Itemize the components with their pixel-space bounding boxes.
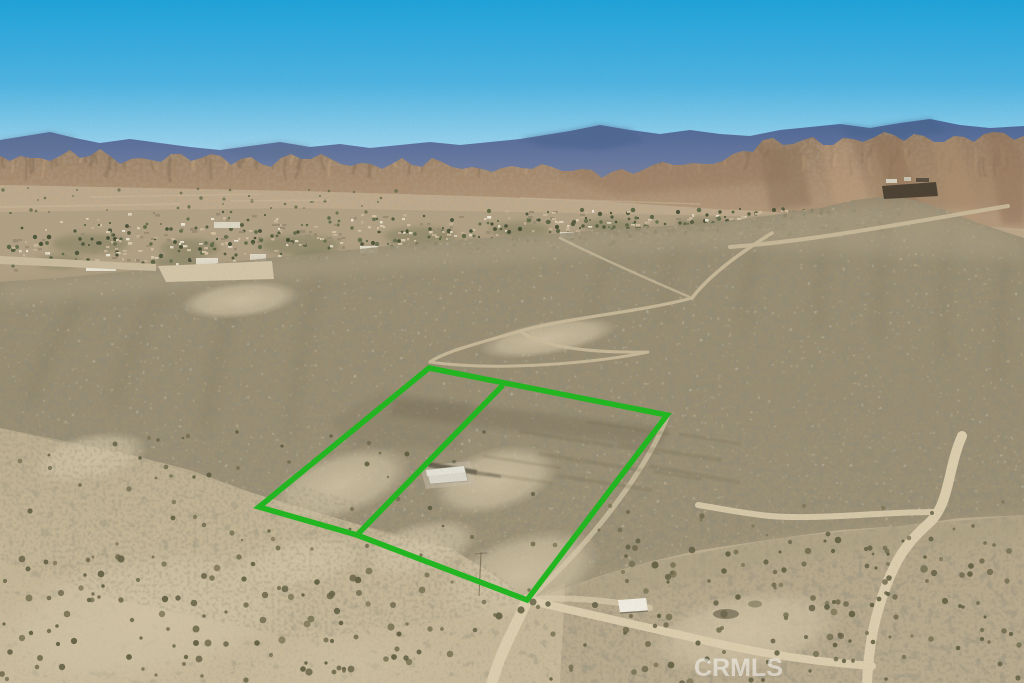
svg-text:CRMLS: CRMLS bbox=[694, 654, 783, 682]
svg-text:CRMLS: CRMLS bbox=[688, 679, 777, 683]
